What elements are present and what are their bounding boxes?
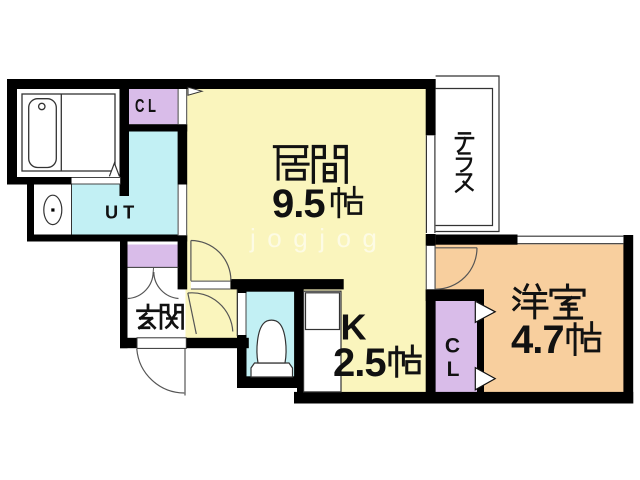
svg-text:jogjog: jogjog: [249, 223, 388, 253]
svg-text:2.5: 2.5: [333, 341, 386, 385]
svg-text:C: C: [445, 335, 460, 358]
svg-text:U T: U T: [105, 201, 135, 222]
svg-text:L: L: [447, 358, 460, 381]
svg-text:9.5: 9.5: [272, 182, 325, 226]
svg-text:C L: C L: [135, 95, 156, 116]
svg-text:4.7: 4.7: [511, 318, 564, 362]
